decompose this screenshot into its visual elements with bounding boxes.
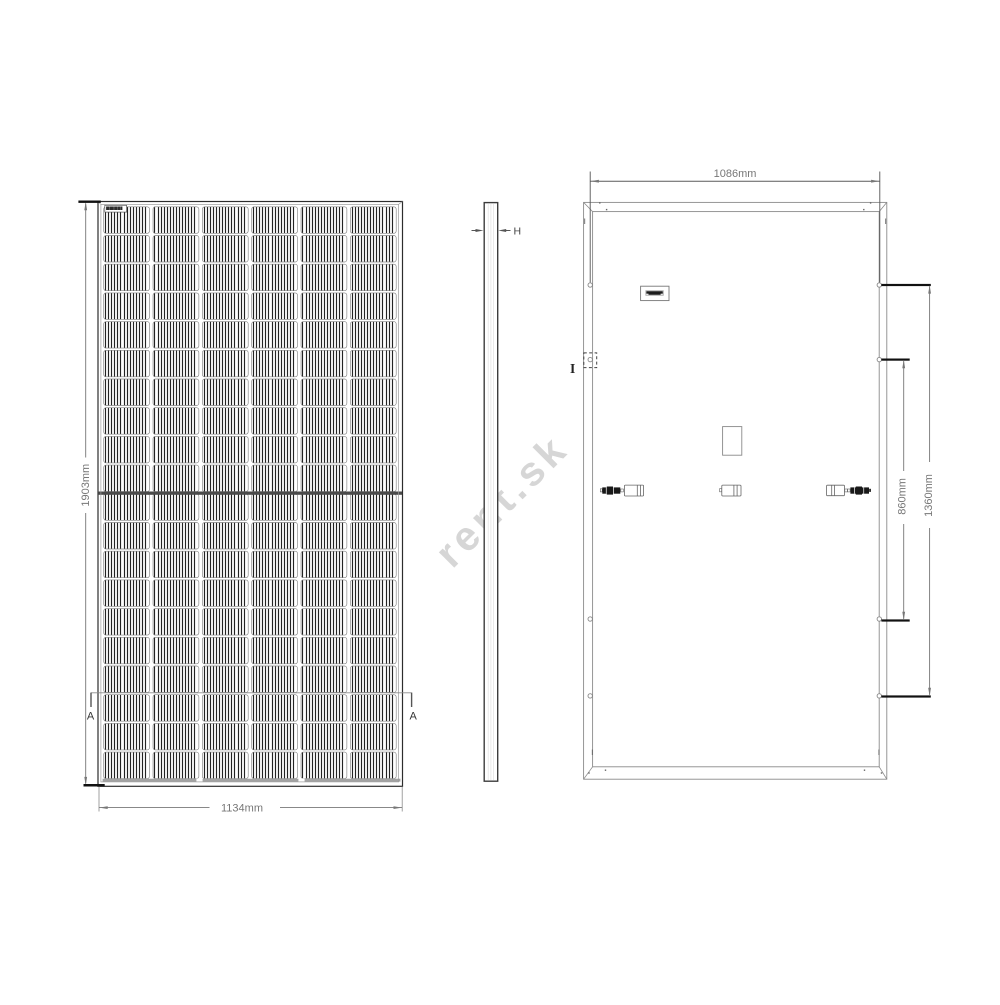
svg-text:A: A (410, 711, 418, 723)
svg-text:I: I (570, 361, 575, 376)
svg-text:A: A (87, 711, 95, 723)
svg-text:860mm: 860mm (896, 478, 908, 515)
svg-text:1086mm: 1086mm (714, 168, 757, 180)
svg-text:1134mm: 1134mm (221, 802, 263, 814)
svg-text:H: H (514, 225, 522, 237)
svg-text:1903mm: 1903mm (80, 464, 92, 507)
svg-text:rent.sk: rent.sk (426, 425, 577, 576)
svg-text:1360mm: 1360mm (923, 474, 935, 517)
